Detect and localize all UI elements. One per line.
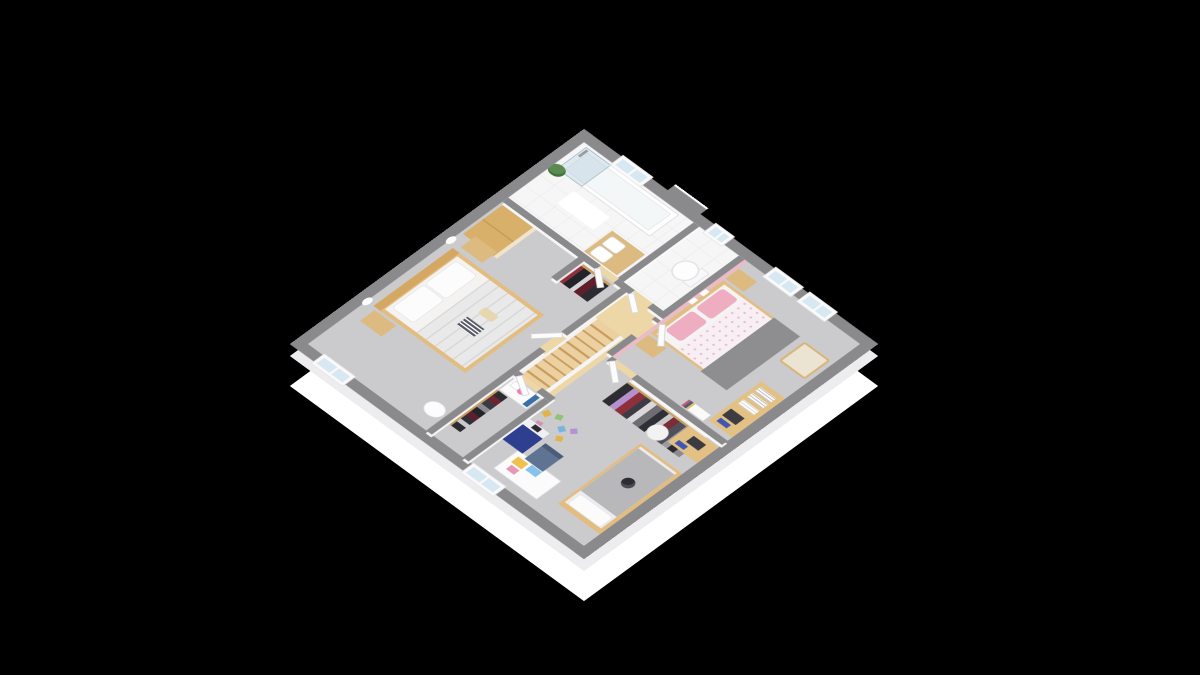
floor-plan-scene [0,0,1200,675]
toy-block [570,428,578,434]
floor-plan [290,129,878,559]
